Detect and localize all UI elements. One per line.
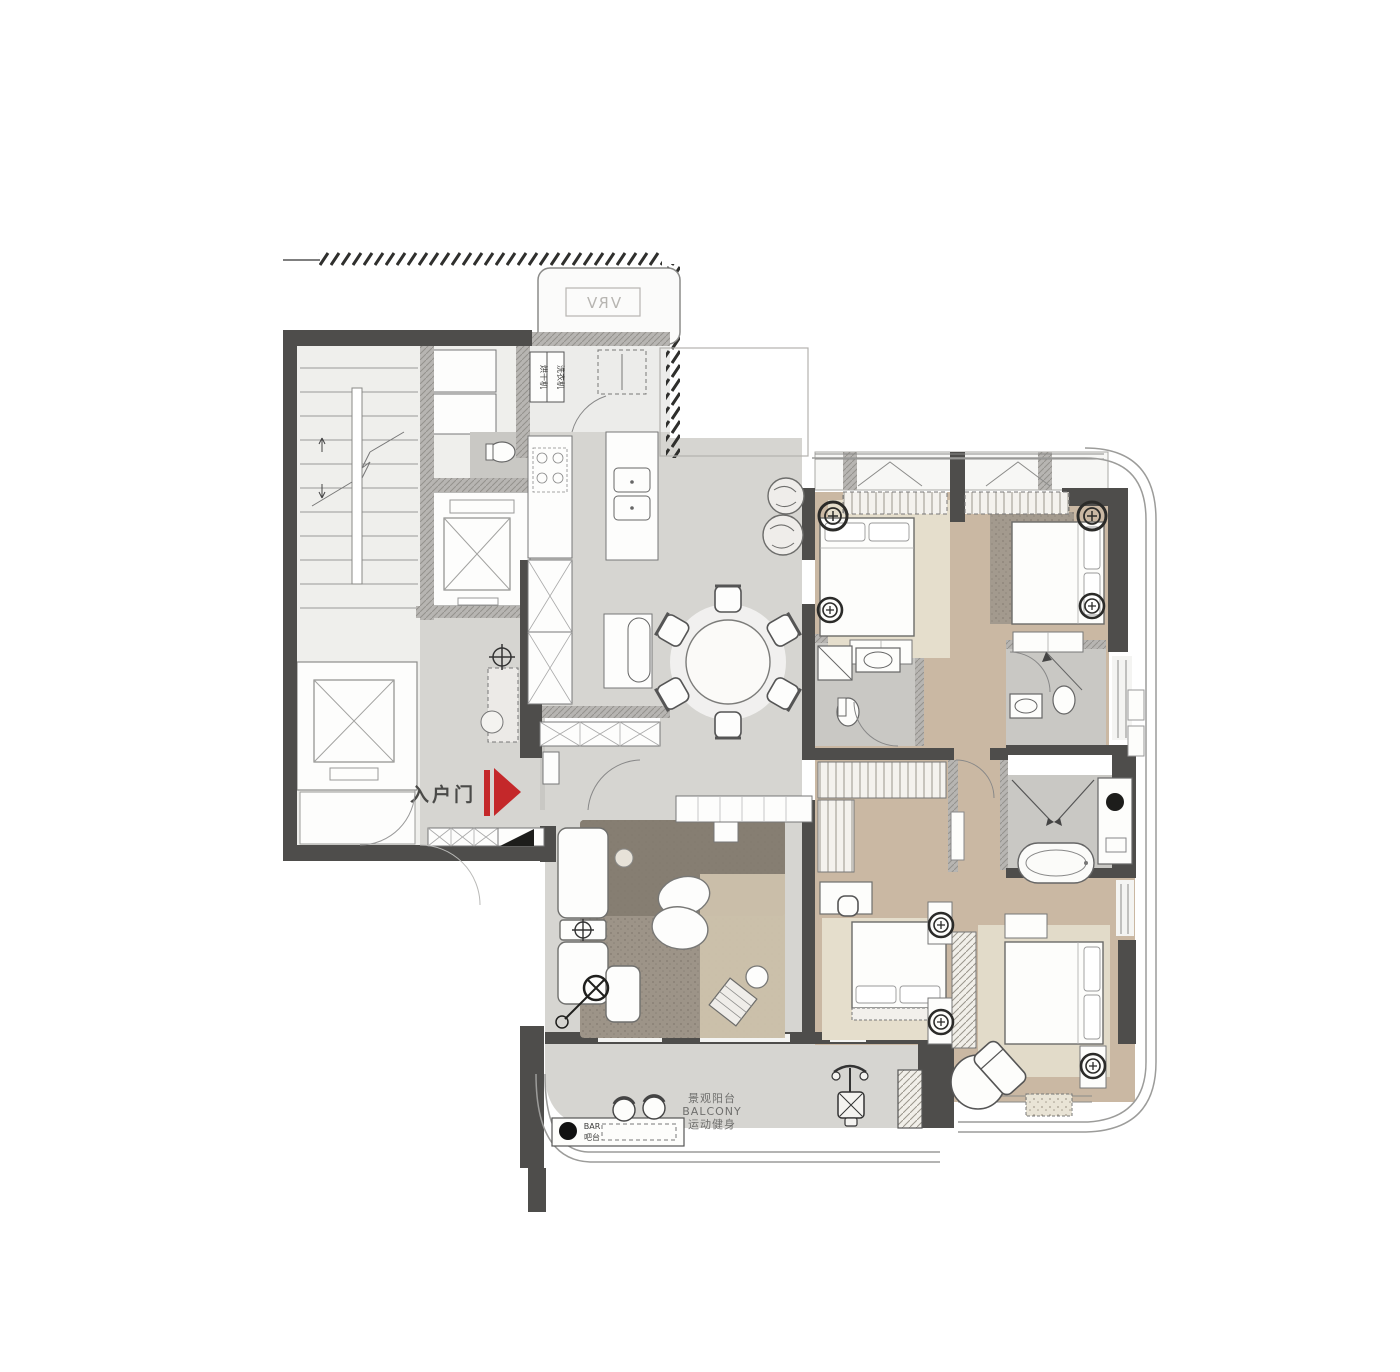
wall-left-outer [283,330,297,861]
bedroom-d-wardrobe [952,932,976,1048]
balcony-floor [545,1044,940,1128]
bedroom-d-nightstand [1005,914,1047,938]
core-wc-tank [486,444,493,460]
bathtub [1018,843,1094,883]
floor-plan-svg: VRV [0,0,1400,1372]
bedroom-c-closet-top [818,762,946,798]
bar-sink [559,1122,577,1140]
plant-1 [768,478,804,514]
dining-table [686,620,770,704]
bar-label-cn: 吧台 [584,1132,600,1142]
shoe-cabinets [428,828,544,846]
wall-below-elevator1 [416,606,530,618]
bedroom-a-pillow-2 [869,523,909,541]
sofa-seat [558,942,608,1004]
core-closet-upper [432,350,496,392]
bath-b-toilet [1053,686,1075,714]
stair-stringer [352,388,362,584]
balcony-label-en: BALCONY [682,1105,742,1118]
wall-kitchen-bottom [524,706,670,718]
living-room [556,796,812,1038]
bedroom-b-wardrobe [965,492,1069,514]
tv-console [676,796,812,822]
wall-right-3 [1118,940,1136,1044]
wall-stair-divider [420,332,434,620]
bedroom-b-pillow-1 [1084,527,1100,569]
bedroom-d-pillow-2 [1084,995,1100,1039]
corridor-shelf [951,812,964,860]
elevator-1 [424,492,530,606]
balcony-label: 景观阳台 BALCONY 运动健身 [682,1091,742,1131]
wall-hall-corridor-pier [990,748,1008,760]
island-pill-top [628,618,650,682]
foyer-stool [481,711,503,733]
sofa-chaise [558,828,608,918]
bedroom-c-stool [838,896,858,916]
planter-box [898,1070,922,1128]
bedroom-c-closet-left [818,800,854,872]
bedroom-c-pillow-1 [856,986,896,1003]
pier-between-bedrooms [950,452,965,522]
wall-bottom-core [283,845,545,861]
master-vanity [1098,778,1132,864]
entrance-arrow-bar [484,770,490,816]
vrv-label-mirrored: VRV [585,294,621,312]
bedroom-d-pillow-1 [1084,947,1100,991]
powder-basin [543,752,559,784]
wall-above-elevator1 [420,478,530,492]
bedroom-a-wardrobe [843,492,947,514]
wall-balcony-left-ext [528,1168,546,1212]
floor-plan-canvas: VRV [0,0,1400,1372]
vrv-label: VRV [585,294,621,312]
dryer-label: 烘干机 [539,365,549,389]
plant-2 [763,515,803,555]
balcony-label-function: 运动健身 [688,1117,736,1131]
window-right-2 [1116,880,1134,936]
kitchen-counter-left [528,436,572,558]
washer-label: 洗衣机 [556,365,566,389]
wall-under-vrv [524,332,670,346]
hall-strip-floor [545,740,661,816]
elevator-1-door [458,598,498,605]
bath-a-cistern [838,698,846,716]
side-table-small [615,849,633,867]
property-line-top [318,252,662,266]
elevator-2 [297,662,417,844]
right-ledge-box-2 [1128,726,1144,756]
balcony-label-cn: 景观阳台 [688,1091,736,1105]
core-closet-lower [432,394,496,434]
master-basin [1106,793,1124,811]
bedroom-a [820,492,950,664]
wall-balcony-mass [918,1032,954,1128]
wall-top-core [283,330,532,346]
bedroom-d-bench [1026,1094,1072,1116]
right-ledge-box-1 [1128,690,1144,720]
side-table-round [746,966,768,988]
wall-corridor-bedroomd [1000,760,1008,870]
wall-right-1 [1108,506,1128,652]
entrance-label: 入户门 [410,783,476,806]
wall-hall-bedroomc [802,748,954,760]
bar-label-en: BAR [584,1122,601,1131]
sofa-corner-seat [606,966,640,1022]
core-service-room [300,792,415,844]
tv-console-box [714,822,738,842]
wall-balcony-left [520,1026,544,1168]
